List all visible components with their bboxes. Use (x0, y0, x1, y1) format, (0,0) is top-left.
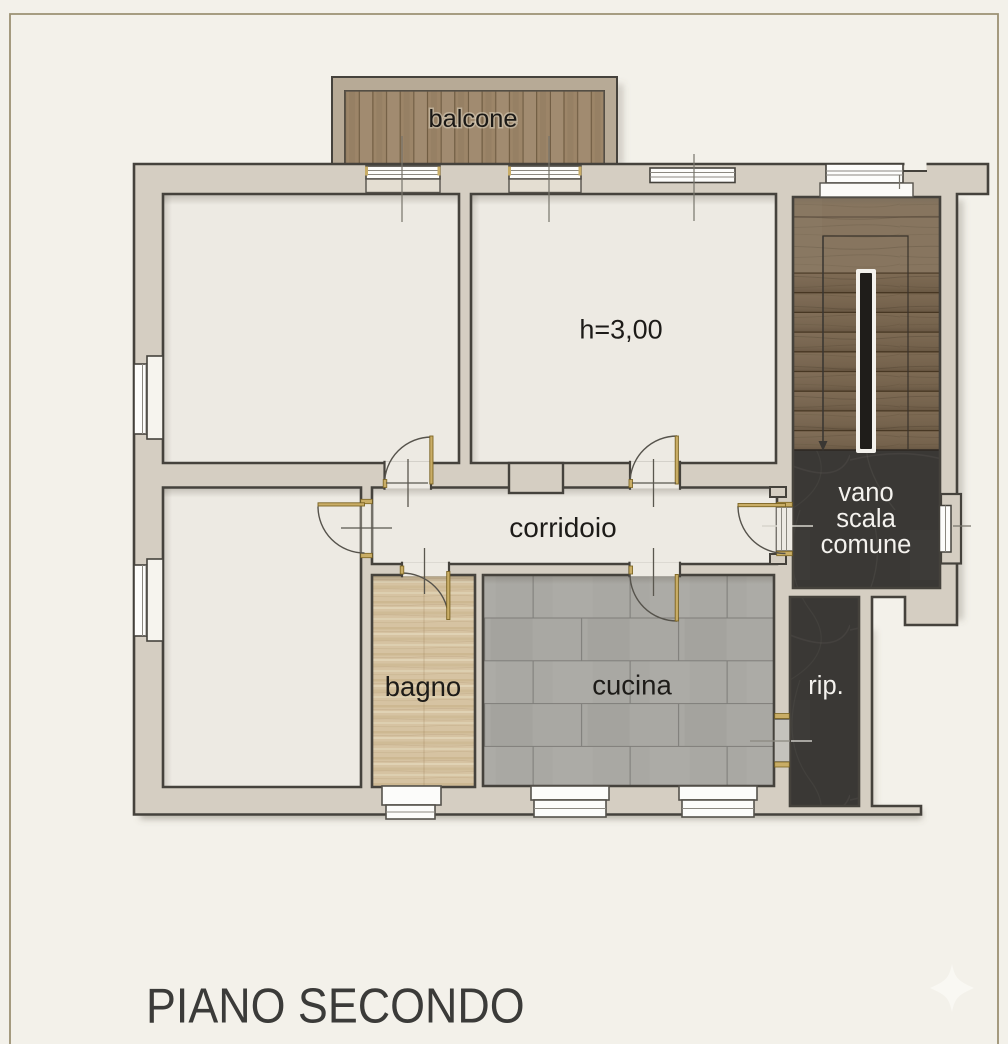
svg-text:comune: comune (821, 531, 912, 559)
svg-text:corridoio: corridoio (509, 512, 616, 543)
svg-text:scala: scala (836, 505, 896, 533)
svg-text:PIANO SECONDO: PIANO SECONDO (146, 978, 525, 1033)
svg-text:rip.: rip. (808, 672, 843, 700)
svg-text:cucina: cucina (592, 670, 672, 701)
svg-text:bagno: bagno (385, 671, 461, 702)
svg-text:balcone: balcone (429, 105, 518, 133)
svg-text:vano: vano (838, 479, 893, 507)
svg-text:h=3,00: h=3,00 (579, 315, 662, 345)
